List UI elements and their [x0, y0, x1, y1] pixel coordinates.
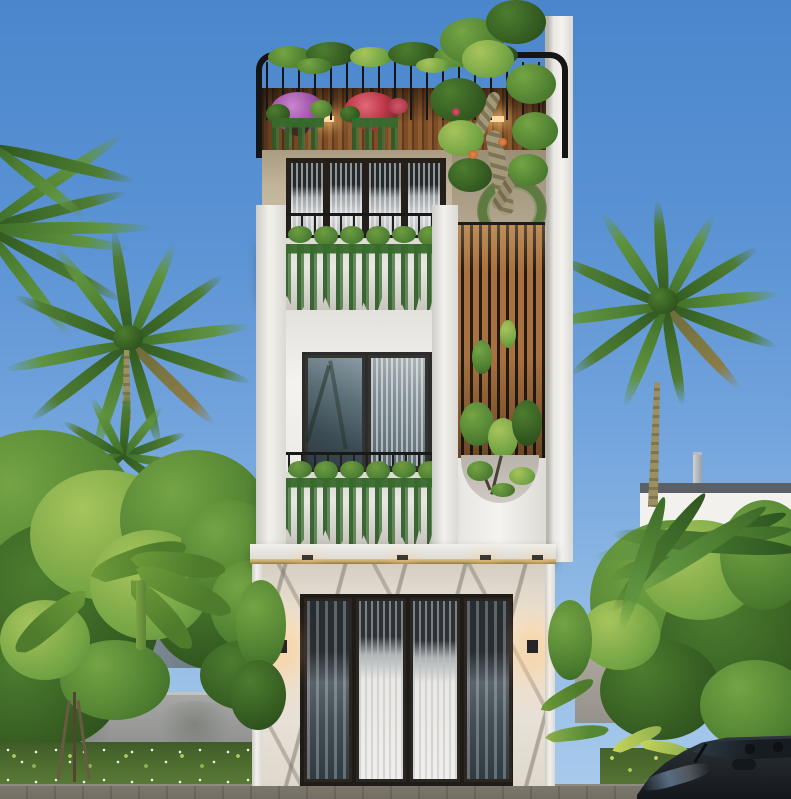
arch-wall	[452, 458, 546, 548]
column-left	[256, 205, 286, 548]
overlap-leaves-left	[230, 660, 286, 730]
column-middle	[432, 205, 458, 548]
scene-stage	[0, 0, 791, 799]
car	[637, 700, 791, 799]
car-headrest	[773, 742, 783, 752]
planter-bushes-3f	[262, 226, 442, 246]
glass-doors-ground	[300, 594, 513, 786]
balcony-soffit	[250, 544, 556, 564]
wall-sconce-right	[527, 640, 538, 653]
overlap-leaves-right	[548, 600, 592, 680]
overlap-leaves-left	[236, 580, 286, 670]
car-mirror	[732, 759, 756, 770]
car-headrest	[745, 744, 755, 754]
